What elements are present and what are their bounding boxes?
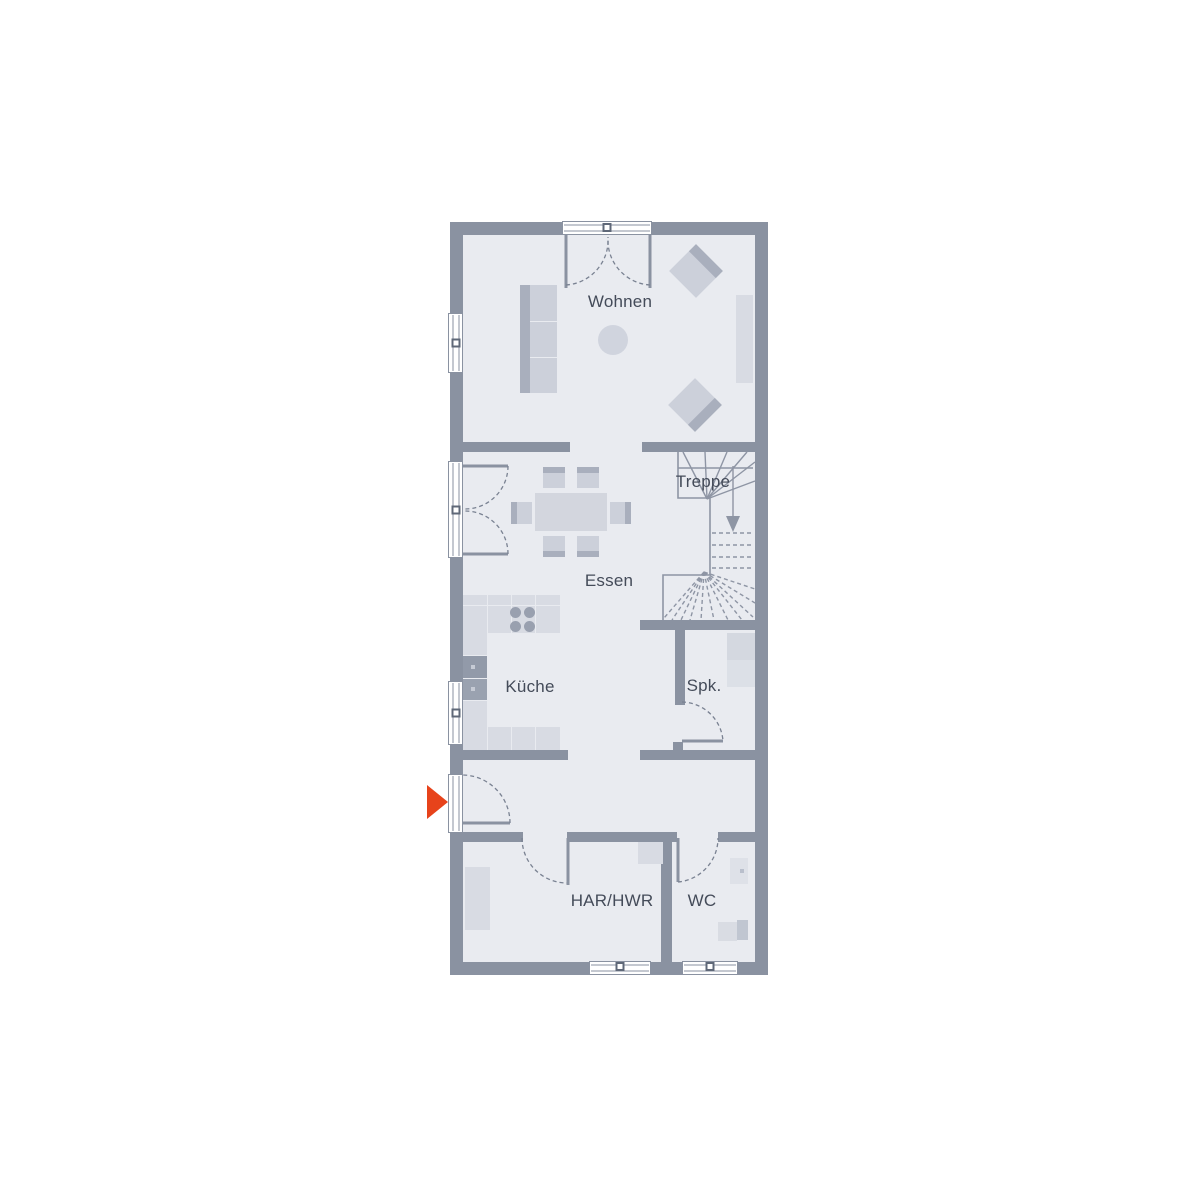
wall-hall-bottom-left bbox=[463, 832, 523, 842]
wall-pantry-left bbox=[675, 628, 685, 705]
room-label-wohnen: Wohnen bbox=[588, 292, 652, 312]
window-utility bbox=[589, 961, 651, 975]
room-label-har-hwr: HAR/HWR bbox=[571, 891, 654, 911]
dining-chair bbox=[610, 502, 631, 524]
garden-door-dining bbox=[448, 461, 463, 558]
room-label-essen: Essen bbox=[585, 571, 633, 591]
terrace-door bbox=[562, 221, 652, 235]
wall-pantry-door-stub bbox=[673, 742, 683, 750]
kitchen-cabinet bbox=[463, 633, 487, 655]
room-label-spk: Spk. bbox=[687, 676, 722, 696]
toilet bbox=[718, 922, 737, 941]
sideboard bbox=[736, 295, 753, 383]
kitchen-sink bbox=[463, 679, 487, 700]
room-label-wc: WC bbox=[688, 891, 717, 911]
wall-hall-top-right bbox=[640, 750, 755, 760]
cooktop-burner bbox=[524, 607, 535, 618]
washbasin bbox=[730, 858, 748, 884]
cooktop-burner bbox=[510, 607, 521, 618]
dining-chair bbox=[577, 467, 599, 488]
dining-chair bbox=[543, 467, 565, 488]
window-wc bbox=[682, 961, 738, 975]
dining-chair bbox=[577, 536, 599, 557]
pantry-shelf bbox=[727, 633, 755, 660]
window-living bbox=[448, 313, 463, 373]
entrance-arrow-icon bbox=[427, 785, 448, 819]
wall-living-dining-right bbox=[642, 442, 755, 452]
kitchen-counter-bottom bbox=[463, 727, 560, 750]
sofa bbox=[520, 285, 557, 393]
kitchen-cabinet bbox=[463, 701, 487, 727]
dining-table bbox=[535, 493, 607, 531]
washing-machine bbox=[638, 842, 663, 864]
pantry-shelf bbox=[727, 660, 755, 687]
kitchen-sink bbox=[463, 656, 487, 678]
dining-chair bbox=[543, 536, 565, 557]
entry-door bbox=[448, 774, 463, 833]
room-label-treppe: Treppe bbox=[676, 472, 730, 492]
window-kitchen bbox=[448, 681, 463, 745]
dining-chair bbox=[511, 502, 532, 524]
wall-living-dining-left bbox=[463, 442, 570, 452]
room-label-kueche: Küche bbox=[505, 677, 554, 697]
sofa-backrest bbox=[520, 285, 530, 393]
toilet-cistern bbox=[737, 920, 748, 940]
utility-cupboard bbox=[465, 867, 490, 930]
floor-plan: Wohnen Treppe Essen Küche Spk. HAR/HWR W… bbox=[0, 0, 1200, 1200]
wall-hall-bottom-right bbox=[718, 832, 755, 842]
wall-right bbox=[755, 222, 768, 975]
wall-stair-bottom bbox=[640, 620, 755, 630]
cooktop-burner bbox=[524, 621, 535, 632]
coffee-table bbox=[598, 325, 628, 355]
cooktop-burner bbox=[510, 621, 521, 632]
wall-hall-top-left bbox=[463, 750, 568, 760]
